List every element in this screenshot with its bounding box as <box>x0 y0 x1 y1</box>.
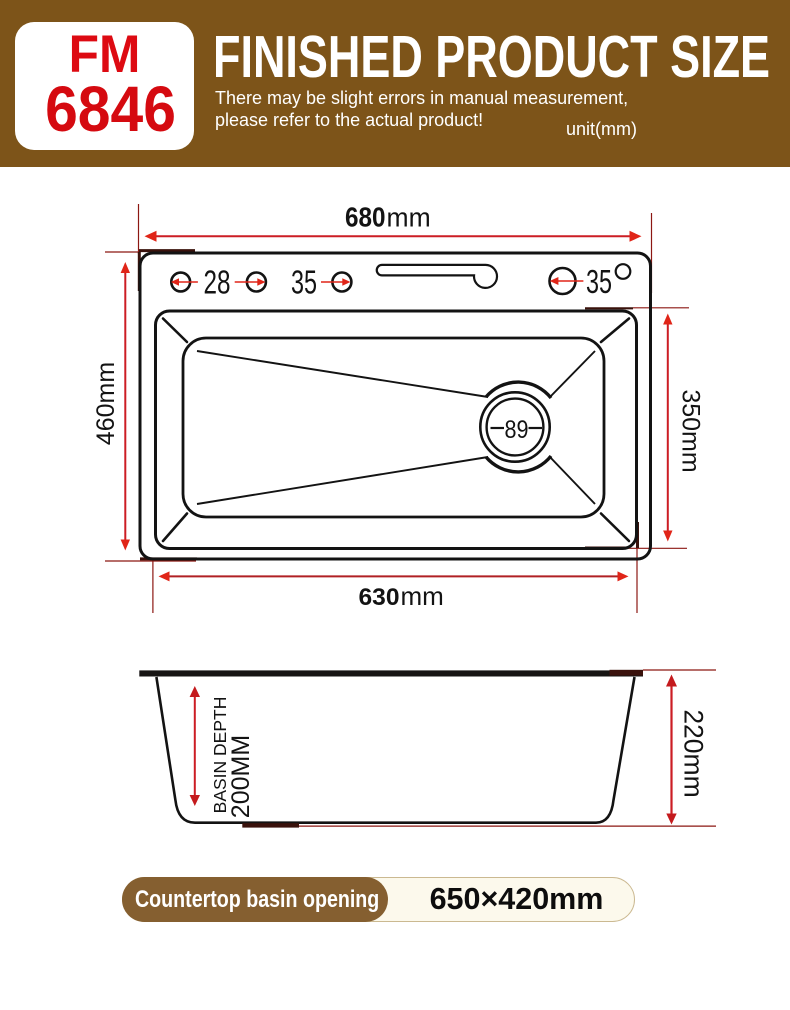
svg-text:28: 28 <box>204 264 231 301</box>
svg-text:630: 630 <box>359 584 400 611</box>
svg-text:220mm: 220mm <box>679 709 709 797</box>
svg-text:200MM: 200MM <box>227 735 255 818</box>
svg-text:460mm: 460mm <box>92 362 120 445</box>
svg-text:35: 35 <box>586 263 612 300</box>
svg-text:35: 35 <box>291 264 317 301</box>
svg-text:680: 680 <box>345 202 386 233</box>
svg-text:89: 89 <box>505 416 529 444</box>
svg-text:350mm: 350mm <box>677 389 705 472</box>
svg-text:mm: mm <box>387 203 431 233</box>
svg-text:mm: mm <box>401 581 444 611</box>
